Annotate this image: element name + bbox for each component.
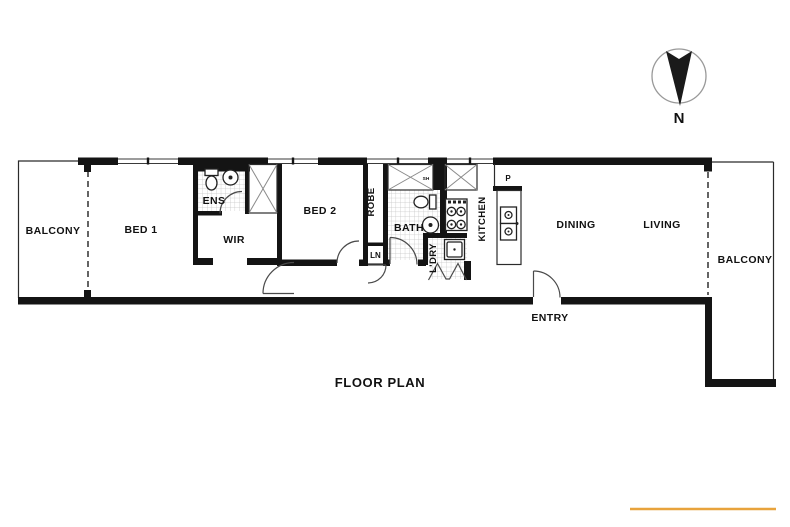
page-title: FLOOR PLAN bbox=[335, 375, 426, 390]
room-label-balcony-right: BALCONY bbox=[718, 254, 773, 266]
room-label-bed2: BED 2 bbox=[304, 205, 337, 217]
bath-toilet-icon bbox=[414, 195, 436, 209]
room-label-wir: WIR bbox=[223, 234, 245, 246]
ens-toilet-icon bbox=[205, 169, 218, 190]
floor-plan-page: BALCONY BED 1 ENS WIR BED 2 ROBE LN BATH… bbox=[0, 0, 790, 527]
room-label-laundry: L'DRY bbox=[428, 243, 439, 273]
room-label-linen: LN bbox=[370, 251, 381, 260]
room-label-entry: ENTRY bbox=[531, 312, 568, 324]
north-arrow-icon bbox=[666, 51, 692, 106]
double-sink-icon bbox=[501, 207, 519, 240]
room-label-balcony-left: BALCONY bbox=[26, 225, 81, 237]
room-label-ens: ENS bbox=[203, 195, 226, 207]
laundry-tub-icon bbox=[445, 240, 465, 260]
kitchen-cross-box bbox=[445, 165, 477, 191]
room-label-shower: SH bbox=[423, 176, 430, 182]
room-label-pantry: P bbox=[505, 174, 511, 183]
room-label-living: LIVING bbox=[643, 219, 680, 231]
ens-basin-icon bbox=[223, 170, 238, 185]
room-label-bath: BATH bbox=[394, 222, 424, 234]
room-label-dining: DINING bbox=[556, 219, 595, 231]
room-label-robe: ROBE bbox=[366, 187, 377, 216]
bath-basin-icon bbox=[423, 217, 439, 233]
robe-cross-box bbox=[249, 165, 277, 214]
compass: N bbox=[652, 49, 706, 127]
sliding-door-left bbox=[84, 163, 91, 298]
compass-north-label: N bbox=[674, 110, 685, 127]
floor-plan-drawing: BALCONY BED 1 ENS WIR BED 2 ROBE LN BATH… bbox=[0, 0, 790, 527]
room-label-kitchen: KITCHEN bbox=[477, 196, 488, 241]
balcony-right-outline bbox=[704, 158, 776, 388]
stove-icon bbox=[446, 199, 468, 231]
room-label-bed1: BED 1 bbox=[125, 224, 158, 236]
